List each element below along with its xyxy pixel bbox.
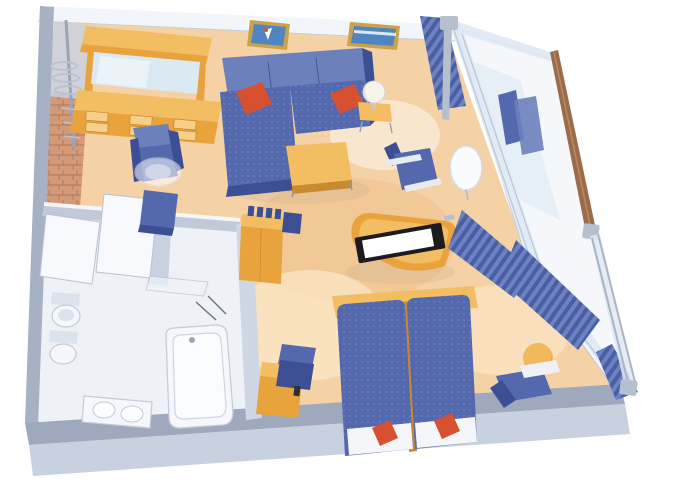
- bathtub: [166, 325, 233, 428]
- tub-faucet: [189, 337, 195, 343]
- twin-bed-left: [337, 300, 413, 456]
- wall-art-sailboat: [247, 20, 290, 50]
- stateroom-floorplan: [0, 0, 680, 486]
- floorplan-canvas: [0, 0, 680, 486]
- wall-art-seascape: [347, 22, 400, 50]
- table-top: [450, 146, 482, 190]
- toilet-seat: [58, 309, 74, 321]
- tv-console: [345, 213, 459, 284]
- bidet-bowl: [50, 344, 76, 364]
- glass-table-inner: [145, 164, 171, 180]
- tub-basin: [173, 333, 226, 419]
- desk-chair-seat: [276, 360, 314, 390]
- coffee-table: [286, 142, 352, 197]
- sink-right: [121, 406, 143, 422]
- sink-left: [93, 402, 115, 418]
- bidet-tank: [49, 330, 78, 344]
- bathroom-door-open: [40, 214, 100, 284]
- mirror-glare: [96, 56, 150, 88]
- bench-top: [140, 190, 178, 228]
- sink-counter: [82, 396, 152, 428]
- lamp-sphere: [363, 81, 385, 103]
- rail-connector-bottom: [619, 379, 638, 396]
- coffee-table-top: [286, 142, 352, 186]
- luggage-bench: [138, 190, 178, 236]
- minibar-tray: [282, 212, 302, 234]
- flag: [264, 28, 268, 32]
- glass-table: [135, 158, 181, 186]
- toilet: [51, 292, 80, 327]
- toilet-tank: [51, 292, 80, 306]
- vanity-mirror-unit: [70, 26, 222, 144]
- twin-bed-right: [407, 295, 477, 449]
- art: [351, 26, 396, 46]
- partition-connector: [440, 16, 458, 30]
